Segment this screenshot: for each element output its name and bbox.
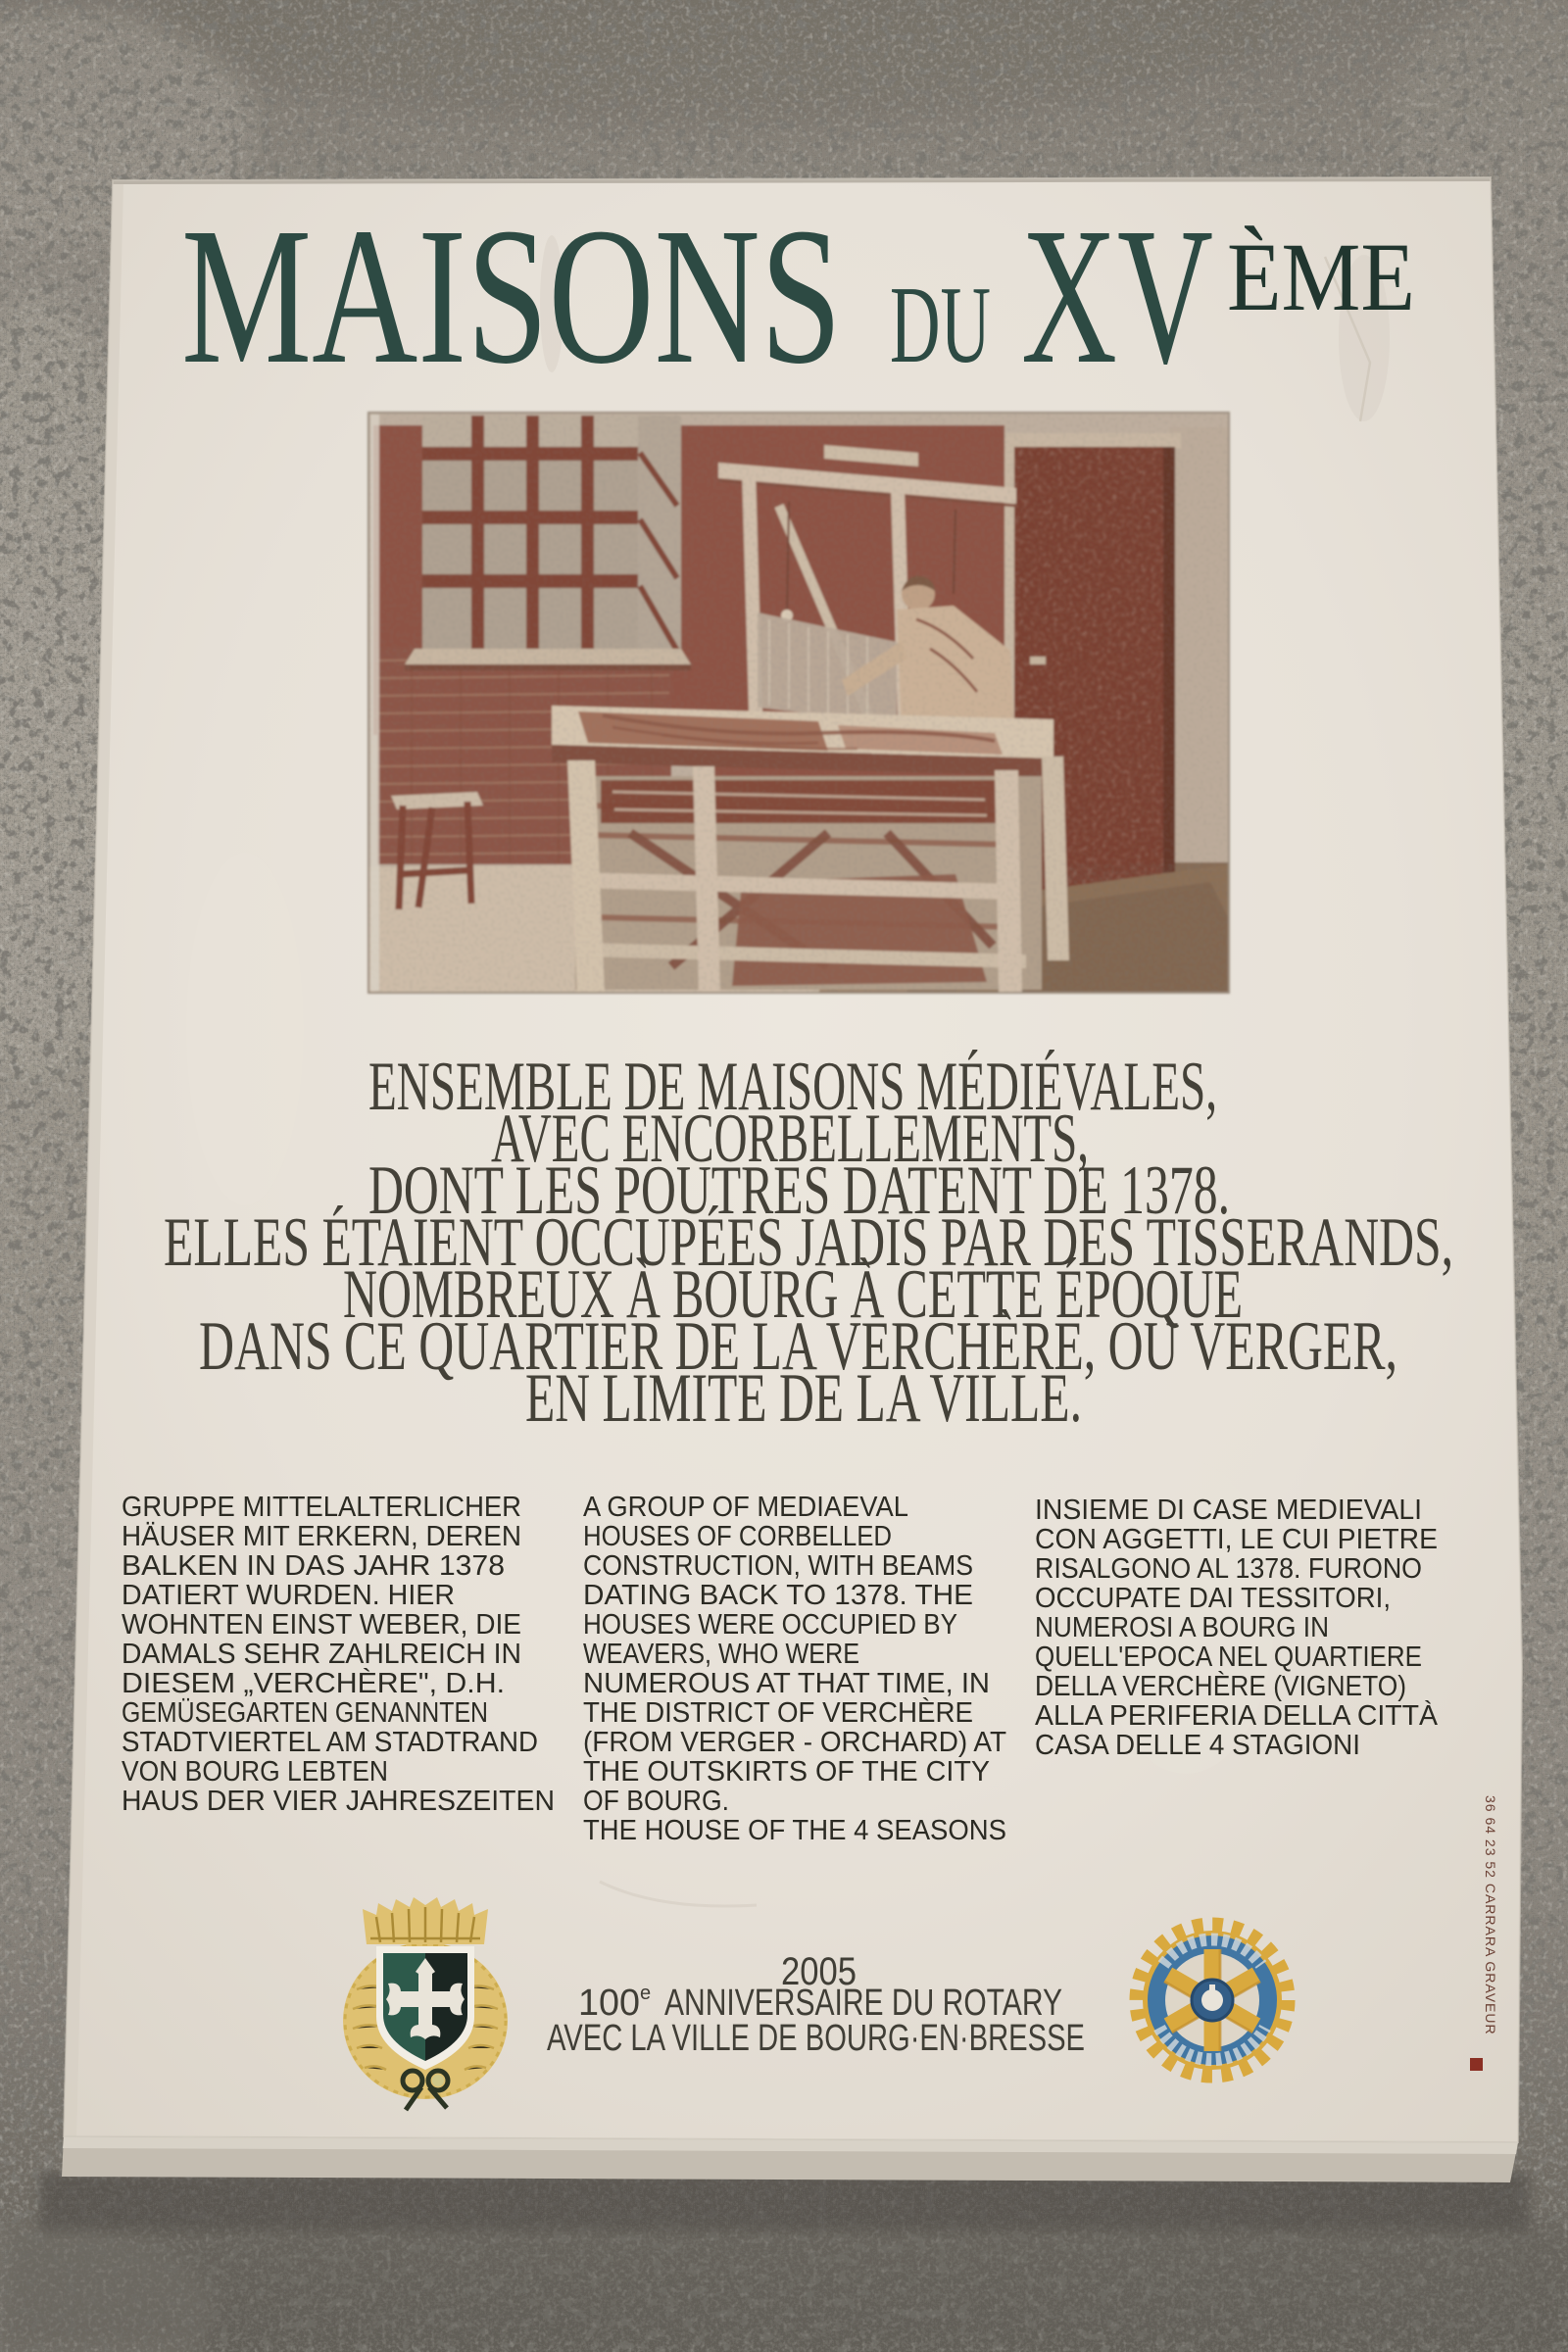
svg-text:THE DISTRICT OF VERCHÈRE: THE DISTRICT OF VERCHÈRE <box>583 1696 973 1729</box>
svg-text:HOUSES WERE OCCUPIED BY: HOUSES WERE OCCUPIED BY <box>583 1609 957 1641</box>
svg-text:THE OUTSKIRTS OF THE CITY: THE OUTSKIRTS OF THE CITY <box>583 1756 990 1788</box>
svg-text:ÈME: ÈME <box>1227 222 1415 331</box>
svg-text:XV: XV <box>1021 188 1213 405</box>
svg-text:STADTVIERTEL AM STADTRAND: STADTVIERTEL AM STADTRAND <box>122 1727 538 1758</box>
svg-text:CASA DELLE 4 STAGIONI: CASA DELLE 4 STAGIONI <box>1035 1730 1360 1761</box>
svg-text:DATING BACK TO 1378. THE: DATING BACK TO 1378. THE <box>583 1580 973 1611</box>
svg-text:DELLA VERCHÈRE (VIGNETO): DELLA VERCHÈRE (VIGNETO) <box>1035 1670 1406 1702</box>
svg-text:OF BOURG.: OF BOURG. <box>583 1786 729 1817</box>
svg-text:VON BOURG LEBTEN: VON BOURG LEBTEN <box>122 1756 388 1788</box>
svg-text:ALLA PERIFERIA DELLA CITTÀ: ALLA PERIFERIA DELLA CITTÀ <box>1035 1699 1439 1732</box>
svg-text:THE HOUSE OF THE 4 SEASONS: THE HOUSE OF THE 4 SEASONS <box>583 1815 1006 1846</box>
svg-text:GEMÜSEGARTEN GENANNTEN: GEMÜSEGARTEN GENANNTEN <box>122 1697 488 1729</box>
svg-text:RISALGONO AL 1378. FURONO: RISALGONO AL 1378. FURONO <box>1035 1553 1422 1585</box>
svg-text:OCCUPATE DAI TESSITORI,: OCCUPATE DAI TESSITORI, <box>1035 1583 1391 1614</box>
svg-text:CON AGGETTI, LE CUI PIETRE: CON AGGETTI, LE CUI PIETRE <box>1035 1524 1438 1555</box>
svg-text:DAMALS SEHR ZAHLREICH IN: DAMALS SEHR ZAHLREICH IN <box>122 1639 521 1670</box>
svg-text:HÄUSER MIT ERKERN, DEREN: HÄUSER MIT ERKERN, DEREN <box>122 1521 521 1552</box>
svg-text:INSIEME DI CASE MEDIEVALI: INSIEME DI CASE MEDIEVALI <box>1035 1494 1422 1526</box>
svg-text:e: e <box>640 1983 651 2004</box>
svg-text:EN LIMITE DE LA VILLE.: EN LIMITE DE LA VILLE. <box>525 1360 1082 1437</box>
svg-text:HAUS DER VIER JAHRESZEITEN: HAUS DER VIER JAHRESZEITEN <box>122 1786 555 1817</box>
svg-text:BALKEN IN DAS JAHR 1378: BALKEN IN DAS JAHR 1378 <box>122 1550 505 1582</box>
svg-text:AVEC LA VILLE DE BOURG·EN·BRES: AVEC LA VILLE DE BOURG·EN·BRESSE <box>547 2018 1085 2059</box>
svg-text:HOUSES OF CORBELLED: HOUSES OF CORBELLED <box>583 1521 892 1552</box>
svg-text:36 64 23 52 CARRARA GRAVEUR: 36 64 23 52 CARRARA GRAVEUR <box>1483 1795 1498 2035</box>
svg-text:DIESEM „VERCHÈRE", D.H.: DIESEM „VERCHÈRE", D.H. <box>122 1667 505 1699</box>
svg-text:DU: DU <box>890 265 991 386</box>
svg-text:QUELL'EPOCA NEL QUARTIERE: QUELL'EPOCA NEL QUARTIERE <box>1035 1641 1422 1673</box>
svg-text:NUMEROUS AT THAT TIME, IN: NUMEROUS AT THAT TIME, IN <box>583 1668 990 1699</box>
svg-text:WOHNTEN EINST WEBER, DIE: WOHNTEN EINST WEBER, DIE <box>122 1609 521 1641</box>
svg-text:MAISONS: MAISONS <box>181 188 842 405</box>
svg-text:DATIERT WURDEN. HIER: DATIERT WURDEN. HIER <box>122 1580 455 1611</box>
svg-text:(FROM VERGER - ORCHARD) AT: (FROM VERGER - ORCHARD) AT <box>583 1727 1006 1758</box>
svg-text:A GROUP OF MEDIAEVAL: A GROUP OF MEDIAEVAL <box>583 1492 908 1523</box>
svg-text:CONSTRUCTION, WITH BEAMS: CONSTRUCTION, WITH BEAMS <box>583 1550 973 1582</box>
svg-text:NUMEROSI A BOURG IN: NUMEROSI A BOURG IN <box>1035 1612 1329 1643</box>
svg-text:GRUPPE MITTELALTERLICHER: GRUPPE MITTELALTERLICHER <box>122 1492 521 1523</box>
svg-text:WEAVERS, WHO WERE: WEAVERS, WHO WERE <box>583 1639 859 1670</box>
